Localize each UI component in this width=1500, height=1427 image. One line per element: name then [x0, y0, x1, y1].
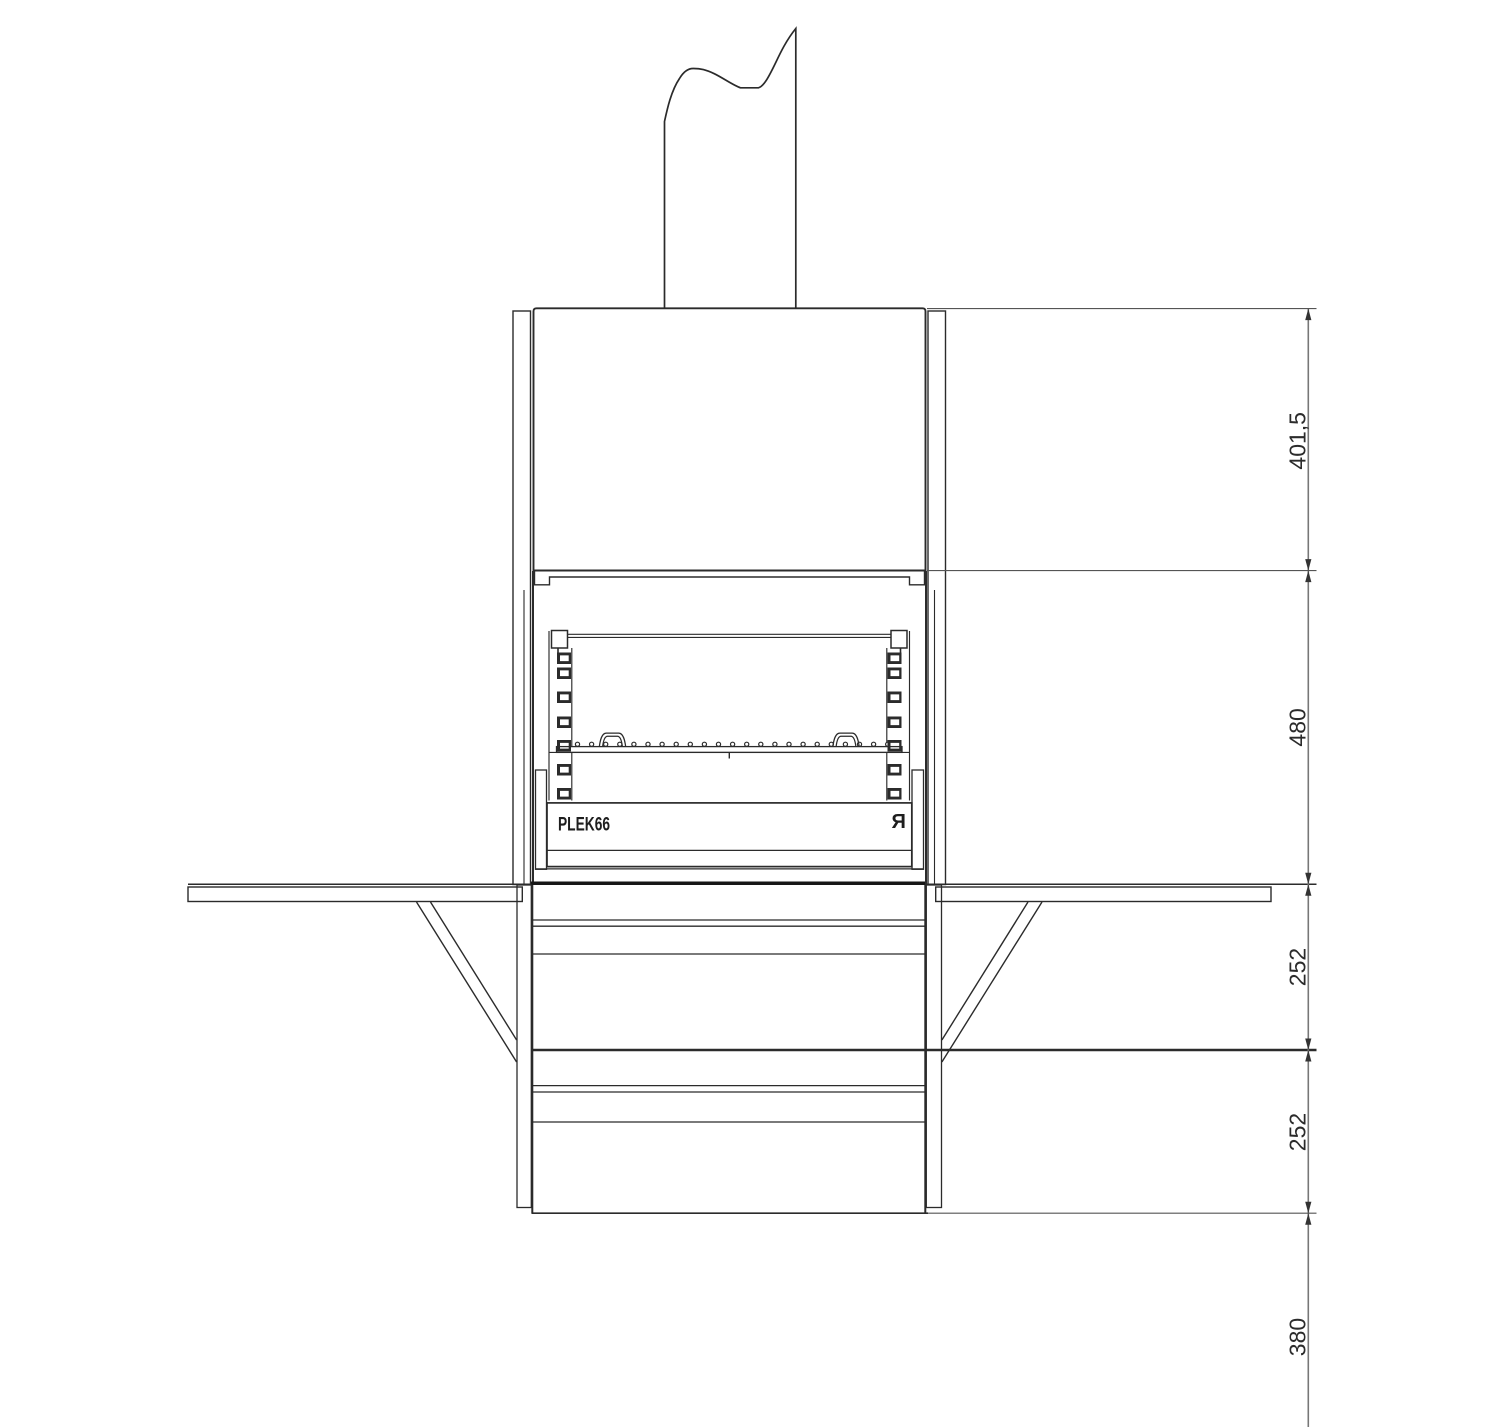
svg-text:480: 480 [1285, 708, 1311, 746]
svg-text:401,5: 401,5 [1285, 412, 1311, 470]
svg-text:252: 252 [1285, 948, 1311, 986]
svg-text:380: 380 [1285, 1318, 1311, 1356]
svg-text:252: 252 [1285, 1113, 1311, 1151]
svg-text:Я: Я [892, 811, 906, 833]
svg-text:PLEK66: PLEK66 [558, 814, 610, 836]
